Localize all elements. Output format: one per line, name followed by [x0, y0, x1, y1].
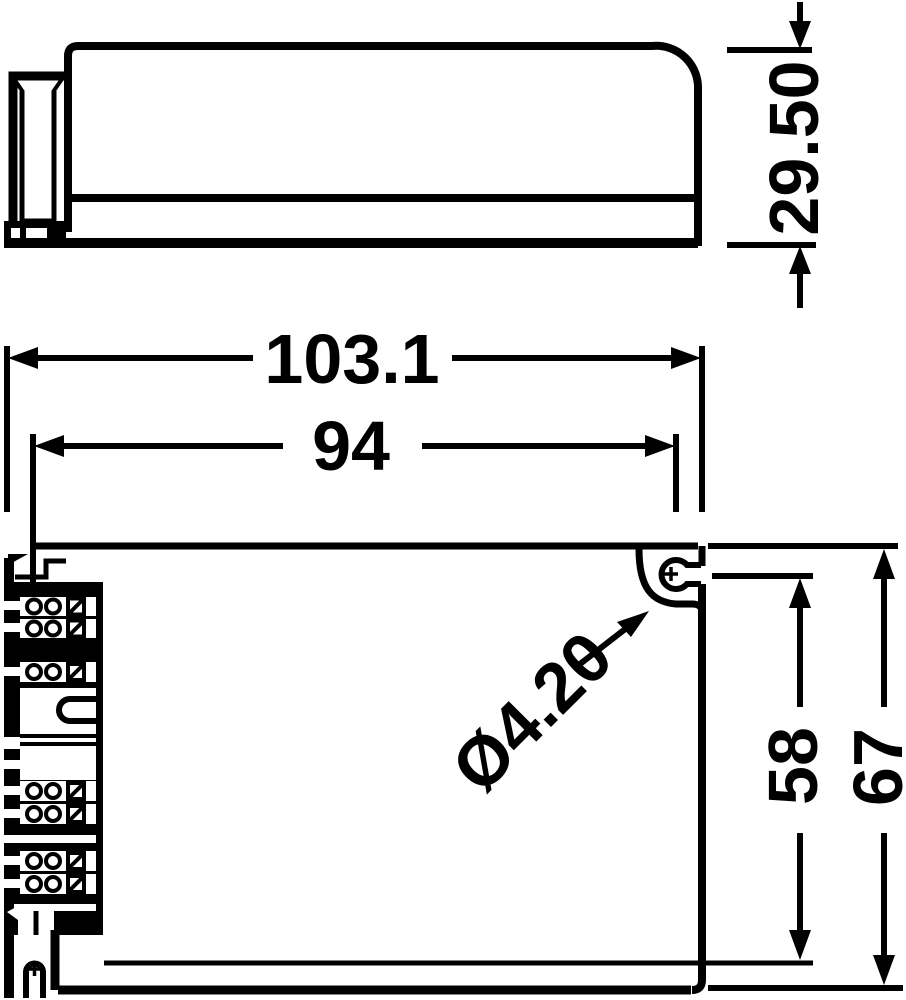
wire-entry-slit: [3, 667, 20, 676]
mounting-slot-top-right: [639, 549, 702, 612]
terminal-block-slit: [14, 904, 96, 911]
arrowhead-left-icon: [34, 435, 64, 457]
slot-center-cross-icon: [664, 567, 678, 581]
arrowhead-right-icon: [671, 347, 701, 369]
top-left-hook: [15, 561, 66, 577]
side-view: [4, 46, 698, 246]
terminal-chamfer-right: [53, 79, 62, 92]
dimension-hole-diameter: Ø4.20: [437, 611, 649, 807]
arrowhead-left-icon: [8, 347, 38, 369]
arrowhead-up-icon: [789, 578, 811, 608]
wire-entry-slit: [3, 856, 20, 865]
drawing-sheet: 29.50 103.1 94: [0, 0, 906, 1000]
dimension-label-mounting-height: 58: [754, 727, 832, 805]
wire-entry-slit: [3, 601, 20, 610]
dimension-label-overall-height: 67: [839, 728, 906, 806]
terminal-foot-notch: [26, 228, 47, 238]
dimension-label-hole-diameter: Ø4.20: [437, 617, 627, 807]
dimension-label-mounting-width: 94: [312, 407, 390, 485]
arrowhead-up-icon: [873, 549, 895, 579]
top-view-right-edge: [692, 584, 702, 990]
wire-entry-slit: [3, 623, 20, 632]
side-view-housing-outline: [68, 46, 698, 246]
terminal-block: [3, 582, 103, 935]
dimension-label-overall-width: 103.1: [264, 320, 439, 398]
terminal-foot-notch: [11, 228, 20, 238]
terminal-block-slit: [3, 835, 96, 843]
dimension-side-height: 29.50: [727, 2, 833, 308]
wire-entry-slit: [3, 786, 20, 795]
wire-entry-slit: [3, 760, 20, 769]
mounting-slot-bottom-left: [9, 930, 55, 998]
side-view-terminal-housing: [4, 76, 66, 240]
dimension-drawing: 29.50 103.1 94: [0, 0, 906, 1000]
arrowhead-up-icon: [789, 246, 811, 274]
arrowhead-down-icon: [873, 955, 895, 985]
wire-entry-slit: [3, 879, 20, 888]
arrowhead-down-icon: [789, 21, 811, 49]
dimension-mounting-height: 58: [712, 576, 832, 960]
arrowhead-right-icon: [645, 435, 675, 457]
dimension-mounting-width: 94: [33, 407, 676, 583]
arrowhead-down-icon: [789, 930, 811, 960]
wire-entry-slit: [3, 809, 20, 818]
dimension-label-side-height: 29.50: [755, 60, 833, 235]
wire-entry-slit: [3, 737, 20, 749]
top-view: [3, 546, 813, 998]
